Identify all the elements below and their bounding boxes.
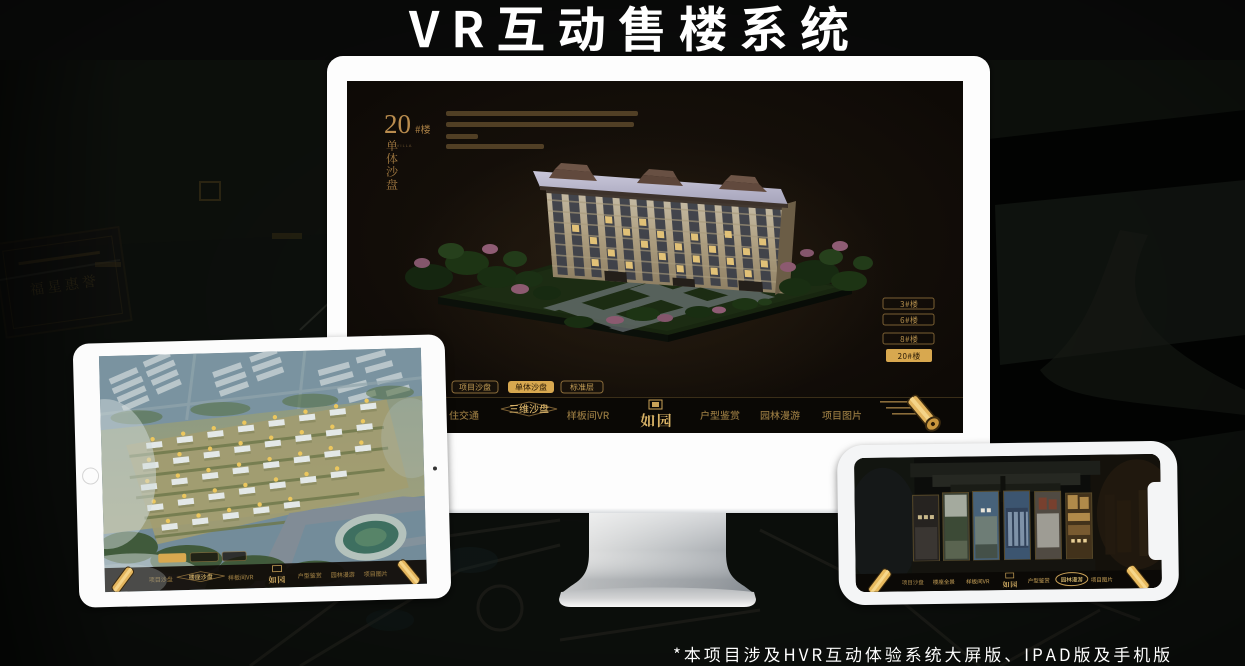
svg-text:V I L L A: V I L L A (397, 143, 412, 148)
svg-text:20: 20 (384, 109, 411, 139)
